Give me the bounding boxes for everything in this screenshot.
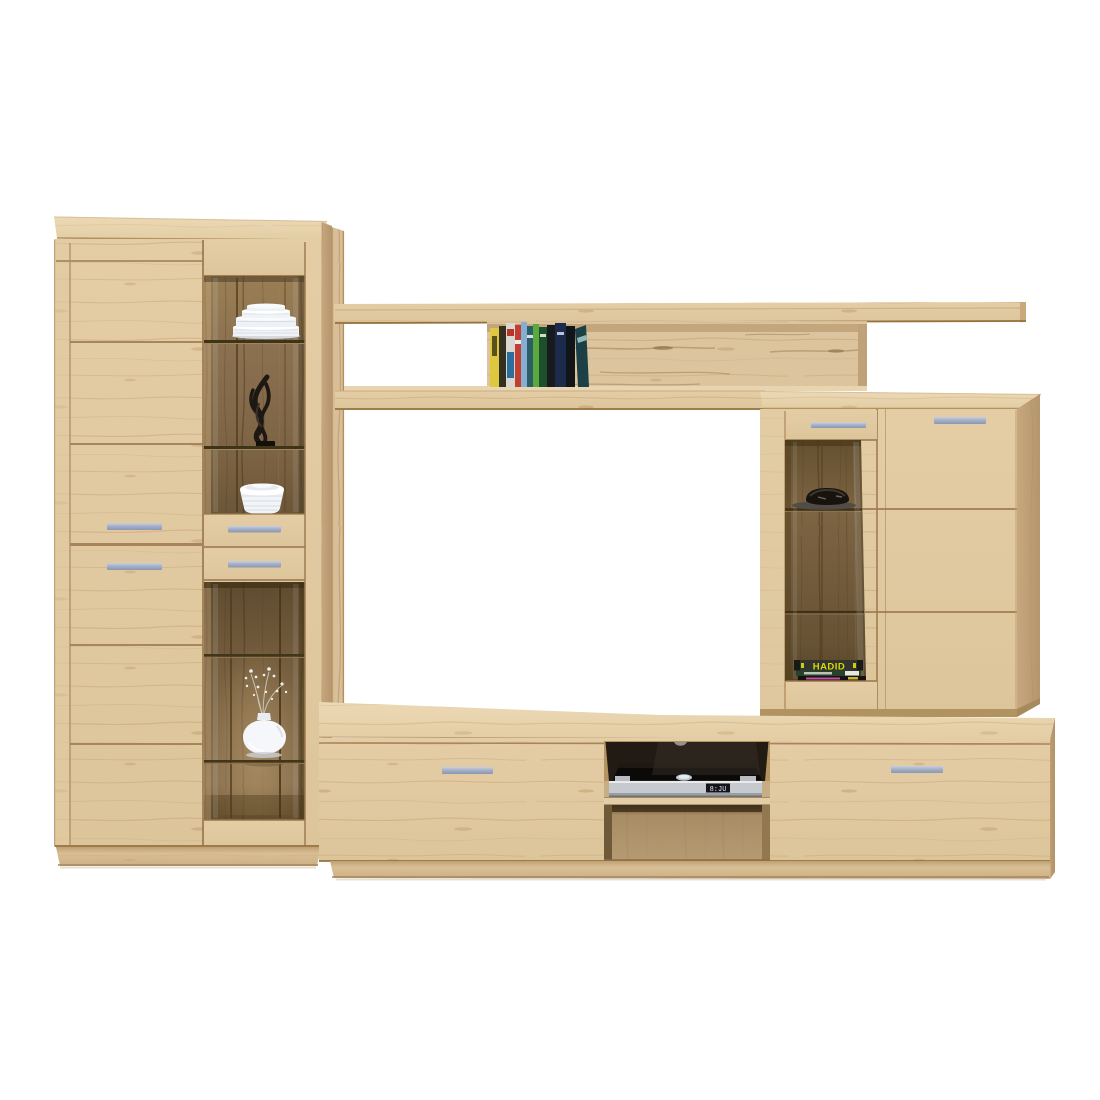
svg-text:8:JU: 8:JU [710,786,727,794]
